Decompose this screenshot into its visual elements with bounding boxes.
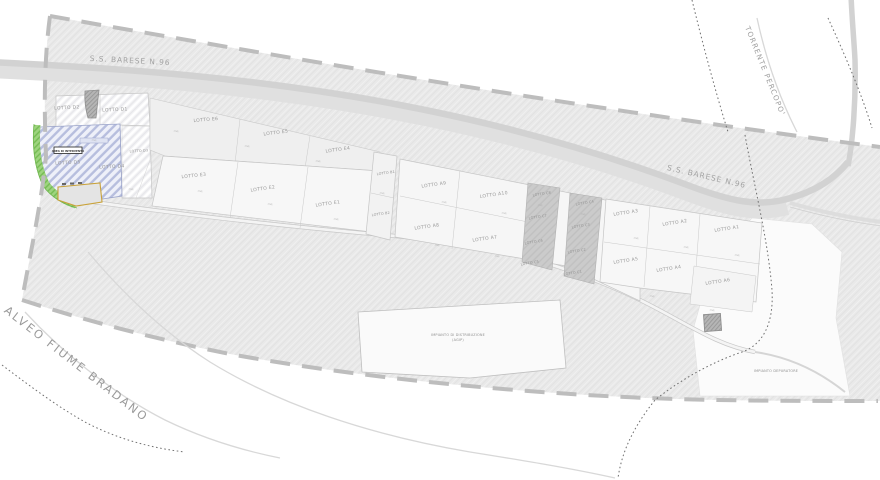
site-plan-map: AREA DI INTERVENTO	[0, 0, 880, 480]
mq-mark: mq	[442, 200, 447, 204]
mq-mark: mq	[538, 203, 543, 207]
building-mark	[78, 182, 82, 184]
mq-mark: mq	[495, 254, 500, 258]
mq-mark: mq	[735, 253, 740, 257]
mq-mark: mq	[684, 245, 689, 249]
mq-mark: mq	[581, 212, 586, 216]
mq-mark: mq	[650, 294, 655, 298]
mq-mark: mq	[129, 187, 134, 191]
mq-mark: mq	[380, 191, 385, 195]
building-se-small	[703, 313, 721, 331]
mq-mark: mq	[634, 236, 639, 240]
site-plan-page: AREA DI INTERVENTO	[0, 0, 880, 480]
facility-depuratore-label: IMPIANTO DEPURATORE	[754, 369, 798, 373]
mq-mark: mq	[268, 202, 273, 206]
mq-mark: mq	[92, 138, 97, 142]
mq-mark: mq	[174, 129, 179, 133]
building-mark	[70, 183, 74, 185]
mq-mark: mq	[502, 211, 507, 215]
mq-mark: mq	[334, 217, 339, 221]
building-mark	[62, 183, 66, 185]
facility-fuel-label-1: IMPIANTO DI DISTRIBUZIONE	[431, 333, 485, 337]
highlight-callout-label: AREA DI INTERVENTO	[52, 149, 85, 153]
mq-mark: mq	[435, 243, 440, 247]
facility-fuel-label-2: (AGIP)	[452, 338, 464, 342]
mq-mark: mq	[245, 144, 250, 148]
mq-mark: mq	[198, 189, 203, 193]
building-yellow	[58, 183, 102, 206]
mq-mark: mq	[710, 308, 715, 312]
mq-mark: mq	[316, 159, 321, 163]
lot-d4	[120, 125, 152, 198]
